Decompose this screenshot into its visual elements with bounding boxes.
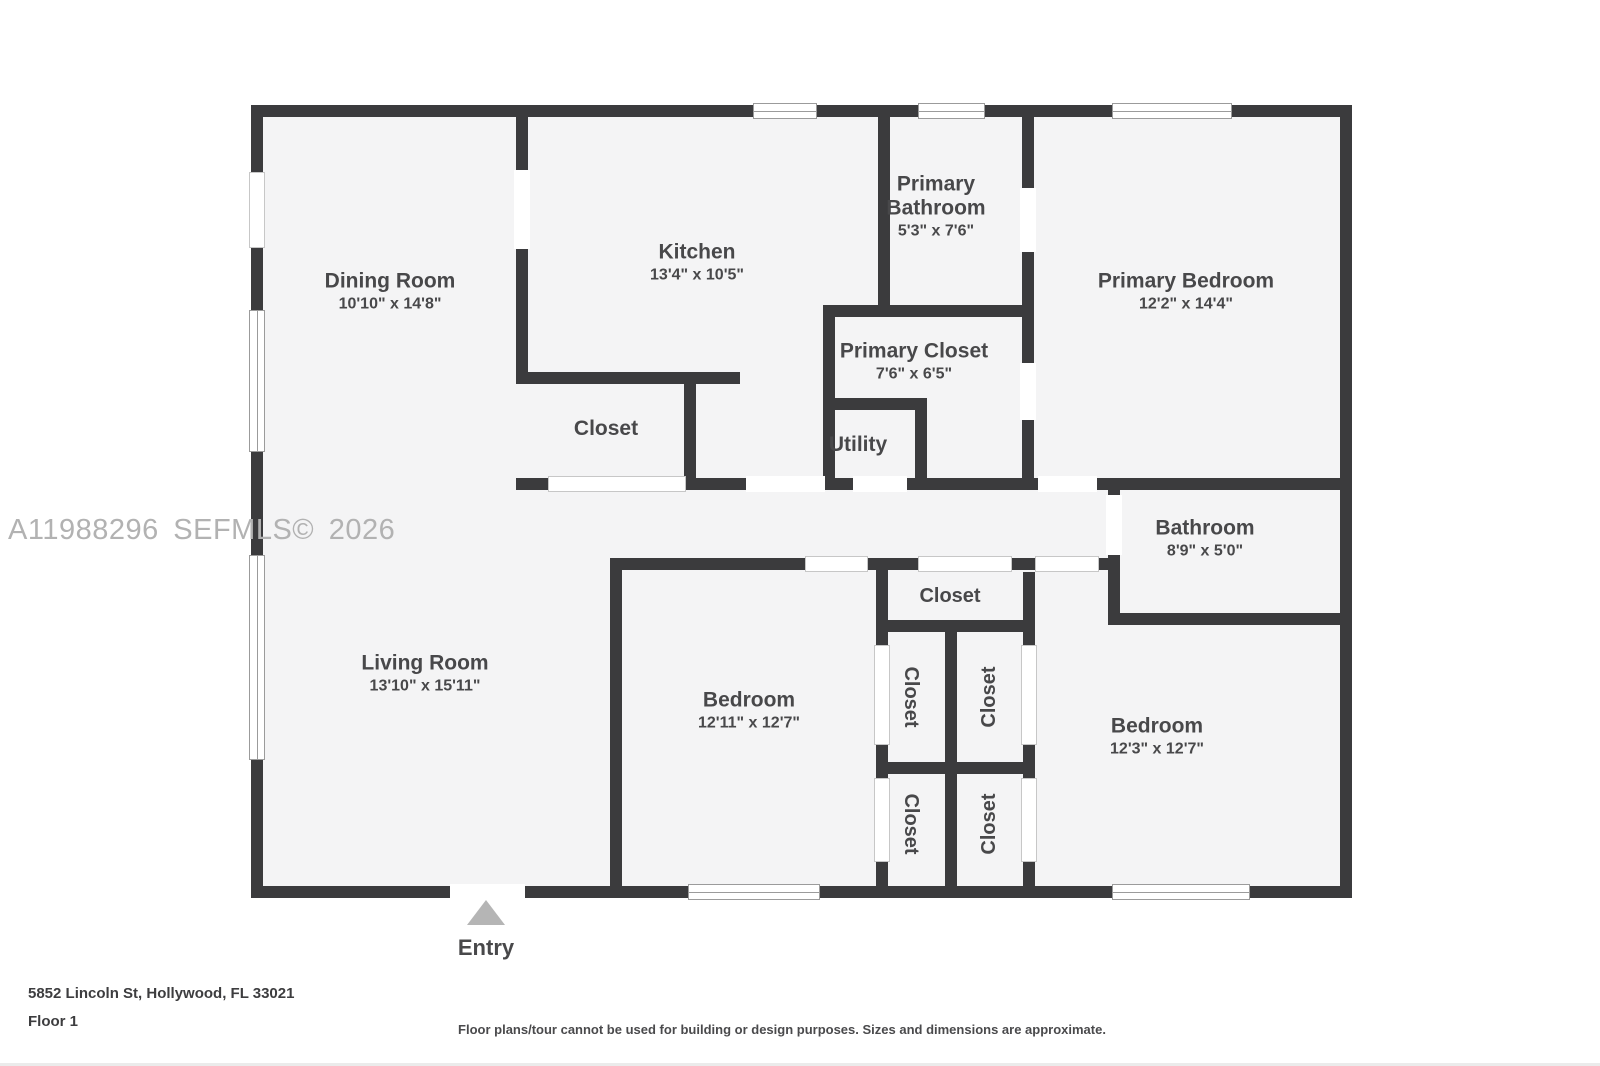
room-label-top-closet: Closet — [919, 584, 980, 608]
room-label-living: Living Room 13'10" x 15'11" — [361, 652, 488, 697]
window-living-left — [249, 555, 265, 760]
wall-closetcol-left-3 — [876, 862, 888, 898]
door-bedroom2 — [805, 556, 868, 572]
door-primarybath-bedroom — [1020, 188, 1036, 252]
window-dining-left-upper — [249, 172, 265, 248]
room-label-closet-lower-left: Closet — [899, 793, 923, 854]
wall-hall-top-d — [905, 478, 1040, 490]
floor-number-text: Floor 1 — [28, 1013, 78, 1030]
room-name: Utility — [829, 433, 887, 457]
entry-door-opening — [450, 884, 525, 900]
door-topcloset — [918, 556, 1012, 572]
room-label-bathroom: Bathroom 8'9" x 5'0" — [1155, 517, 1254, 562]
room-dims: 12'3" x 12'7" — [1110, 740, 1204, 760]
room-label-dining: Dining Room 10'10" x 14'8" — [325, 270, 456, 315]
wall-topcloset-bottom — [876, 620, 1035, 632]
room-label-closet-upper-left: Closet — [899, 666, 923, 727]
room-label-bedroom2: Bedroom 12'11" x 12'7" — [698, 689, 800, 734]
room-name: Primary Closet — [840, 340, 988, 364]
wall-kitchen-divider-lower — [516, 247, 528, 384]
wall-closetcol-divider — [876, 762, 1035, 774]
room-name: Bedroom — [1110, 715, 1204, 739]
address-text: 5852 Lincoln St, Hollywood, FL 33021 — [28, 985, 294, 1002]
wall-kitchen-divider-upper — [516, 105, 528, 172]
door-utility — [853, 476, 907, 492]
wall-utility-top — [823, 398, 927, 410]
wall-closetcol-left-1 — [876, 570, 888, 645]
floor-area — [257, 111, 1346, 892]
room-label-utility: Utility — [829, 433, 887, 457]
room-dims: 13'4" x 10'5" — [650, 266, 744, 286]
room-dims: 7'6" x 6'5" — [840, 365, 988, 385]
room-dims: 12'11" x 12'7" — [698, 714, 800, 734]
door-closet-lower-right — [1021, 778, 1037, 862]
wall-closet-divider — [684, 384, 696, 490]
room-name: Bathroom — [1155, 517, 1254, 541]
room-name: Bedroom — [698, 689, 800, 713]
wall-hall-bottom-c — [1010, 558, 1037, 570]
room-label-bedroom3: Bedroom 12'3" x 12'7" — [1110, 715, 1204, 760]
disclaimer-text: Floor plans/tour cannot be used for buil… — [458, 1022, 1106, 1037]
door-closet-upper-right — [1021, 645, 1037, 745]
room-name: Living Room — [361, 652, 488, 676]
door-closet-upper-left — [874, 645, 890, 745]
door-bedroom3 — [1035, 556, 1099, 572]
wall-exterior-right — [1340, 105, 1352, 898]
opening-dining-kitchen — [514, 170, 530, 249]
room-name: Closet — [919, 584, 980, 608]
wall-hall-bottom-a — [610, 558, 807, 570]
room-label-primary-bathroom: Primary Bathroom 5'3" x 7'6" — [876, 173, 996, 242]
window-bedroom2-bottom — [688, 884, 820, 900]
entry-label: Entry — [458, 935, 514, 961]
room-label-hall-closet: Closet — [574, 417, 638, 441]
room-label-kitchen: Kitchen 13'4" x 10'5" — [650, 241, 744, 286]
room-dims: 10'10" x 14'8" — [325, 295, 456, 315]
wall-closetcol-right-1 — [1023, 572, 1035, 645]
room-label-closet-upper-right: Closet — [977, 666, 1001, 727]
wall-bathroom-bottom — [1108, 613, 1352, 625]
wall-bedroom2-left — [610, 558, 622, 898]
door-bathroom — [1106, 495, 1122, 555]
room-name: Primary Bedroom — [1098, 270, 1274, 294]
wall-hall-bottom-b — [866, 558, 920, 570]
door-primarybedroom — [1038, 476, 1097, 492]
floor-plan-canvas: Dining Room 10'10" x 14'8" Kitchen 13'4"… — [0, 0, 1600, 1066]
door-hall-closet — [548, 476, 686, 492]
room-label-closet-lower-right: Closet — [977, 793, 1001, 854]
room-dims: 8'9" x 5'0" — [1155, 542, 1254, 562]
room-name: Closet — [899, 793, 923, 854]
room-label-primary-bedroom: Primary Bedroom 12'2" x 14'4" — [1098, 270, 1274, 315]
window-bedroom3-bottom — [1112, 884, 1250, 900]
room-name: Kitchen — [650, 241, 744, 265]
room-name: Closet — [977, 666, 1001, 727]
room-name: Closet — [574, 417, 638, 441]
wall-hall-top-a — [516, 478, 550, 490]
wall-hall-top-b — [684, 478, 748, 490]
room-name: Closet — [977, 793, 1001, 854]
wall-hall-top-c — [823, 478, 855, 490]
room-name: Dining Room — [325, 270, 456, 294]
wall-closetcol-right-3 — [1023, 862, 1035, 898]
room-name: Primary Bathroom — [876, 173, 996, 221]
room-name: Closet — [899, 666, 923, 727]
wall-closet-top — [516, 372, 740, 384]
room-label-primary-closet: Primary Closet 7'6" x 6'5" — [840, 340, 988, 385]
window-kitchen-top — [753, 103, 817, 119]
opening-kitchen-hallway — [746, 476, 825, 492]
door-closet-lower-left — [874, 778, 890, 862]
entry-arrow-icon — [467, 900, 505, 925]
room-dims: 13'10" x 15'11" — [361, 677, 488, 697]
wall-utility-right — [915, 398, 927, 490]
door-primarycloset-bedroom — [1020, 363, 1036, 420]
wall-hall-top-e — [1095, 478, 1352, 490]
window-primarybath-top — [918, 103, 985, 119]
room-dims: 5'3" x 7'6" — [876, 222, 996, 242]
window-primarybedroom-top — [1112, 103, 1232, 119]
room-dims: 12'2" x 14'4" — [1098, 295, 1274, 315]
window-dining-left — [249, 310, 265, 452]
mls-watermark: A11988296 SEFMLS© 2026 — [8, 514, 395, 547]
wall-primarycloset-top — [823, 305, 1034, 317]
